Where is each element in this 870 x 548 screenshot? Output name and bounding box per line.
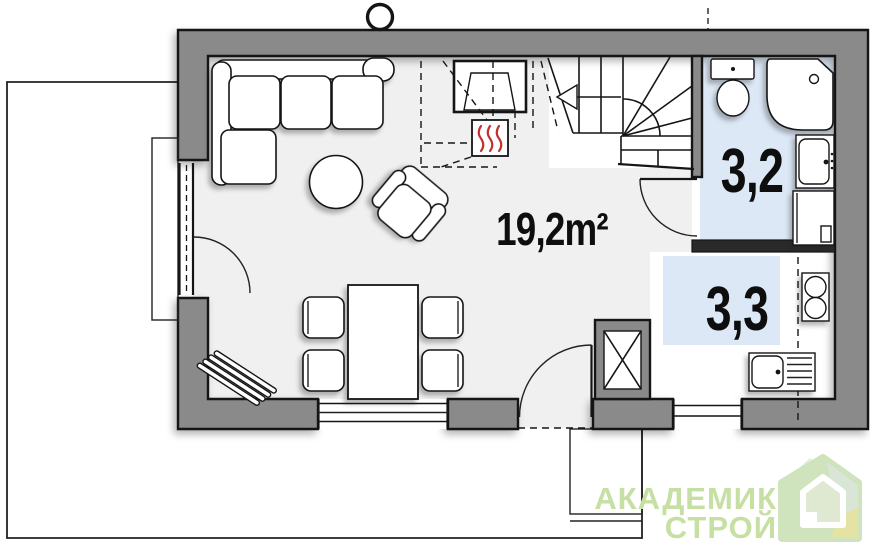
living-room-area-label: 19,2m²: [496, 203, 608, 255]
chair: [422, 350, 463, 391]
window-living: [318, 399, 448, 429]
corner-bathtub: [767, 59, 833, 130]
washbasin: [796, 135, 834, 188]
floor-plan: 19,2m² 3,2 3,3 АКАДЕМИК СТРОЙ: [0, 0, 870, 548]
bathroom-area-label: 3,2: [721, 135, 783, 205]
logo: АКАДЕМИК СТРОЙ: [594, 458, 858, 545]
logo-house-icon: [782, 458, 858, 538]
kitchen-sink: [749, 353, 815, 391]
logo-line2: СТРОЙ: [665, 509, 777, 545]
chimney-block: [454, 61, 526, 112]
flue-box: [595, 320, 650, 399]
chair: [303, 350, 344, 391]
fireplace-heater: [472, 120, 508, 156]
stove: [802, 273, 829, 321]
washing-machine: [793, 191, 834, 245]
stair-partition-wall: [692, 56, 702, 177]
chimney-vent-circle: [368, 5, 393, 30]
coffee-table: [310, 156, 363, 209]
chair: [303, 297, 344, 338]
kitchen-area-label: 3,3: [706, 273, 768, 343]
dining-table: [348, 285, 418, 399]
chair: [422, 297, 463, 338]
window-kitchen: [673, 399, 742, 429]
